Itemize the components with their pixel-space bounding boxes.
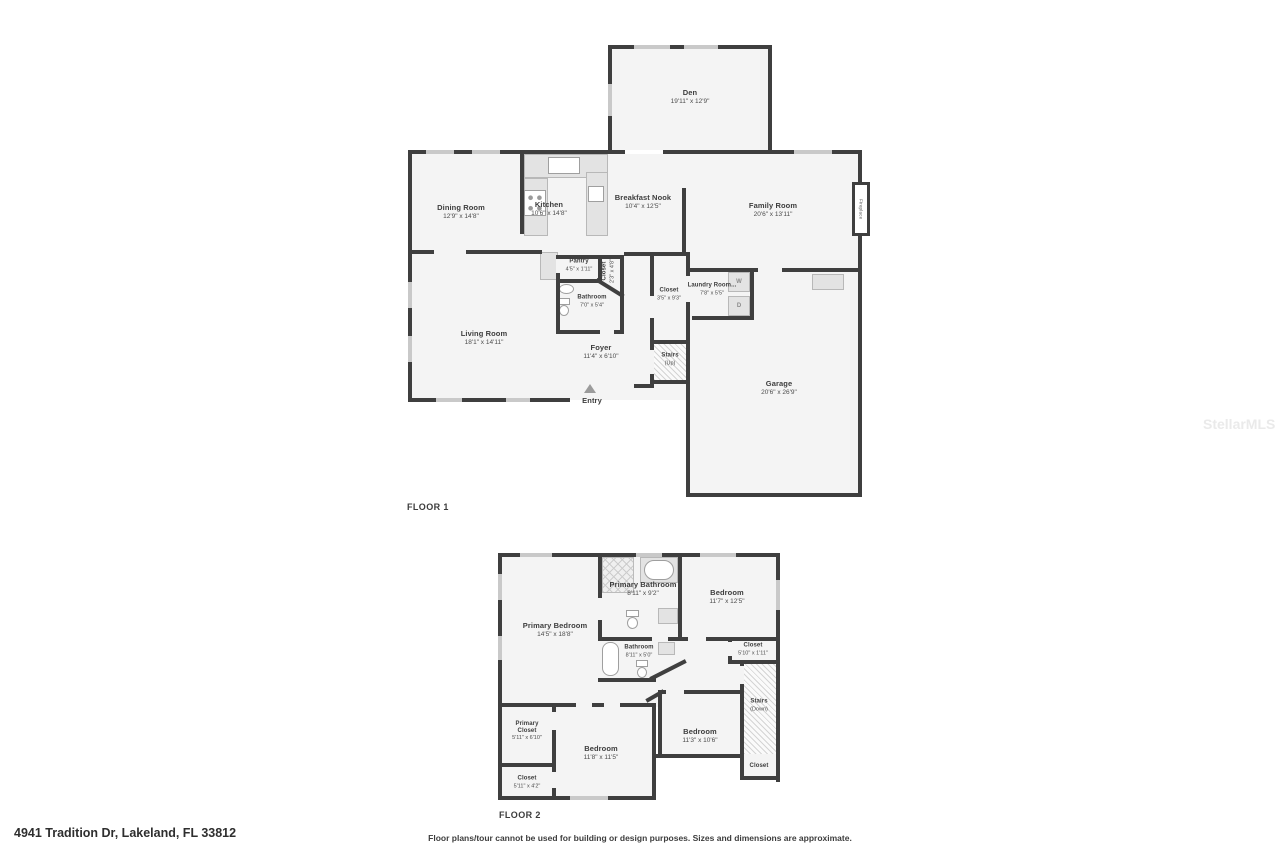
room-name: Entry <box>582 396 602 406</box>
wall-segment <box>408 398 570 402</box>
dryer-icon: D <box>728 296 750 316</box>
room-name: Breakfast Nook <box>615 193 671 203</box>
room-label-bedroom-mid: Bedroom 11'3" x 10'6" <box>682 727 717 745</box>
wall-segment <box>658 690 662 758</box>
room-dims: 11'8" x 11'5" <box>584 754 619 762</box>
room-dims: (Up) <box>661 360 678 367</box>
window-marker <box>408 336 412 362</box>
window-marker <box>498 574 502 600</box>
wall-segment <box>624 252 690 256</box>
kitchen-counter <box>586 172 608 236</box>
window-marker <box>634 45 670 49</box>
room-name: Bedroom <box>709 588 744 598</box>
door-opening <box>556 259 560 273</box>
door-opening <box>576 703 592 707</box>
fireplace: Fireplace <box>852 182 870 236</box>
door-opening <box>598 598 602 620</box>
room-dims: 12'9" x 14'8" <box>437 213 485 221</box>
room-name: Closet <box>514 776 541 784</box>
window-marker <box>794 150 832 154</box>
room-dims: (Down) <box>750 706 768 713</box>
entry-arrow-icon <box>584 384 596 393</box>
door-opening <box>666 690 684 694</box>
wall-segment <box>740 776 780 780</box>
room-dims: 19'11" x 12'9" <box>671 98 710 106</box>
room-name: Family Room <box>749 201 797 211</box>
room-label-bathroom: Bathroom 7'0" x 5'4" <box>577 295 606 310</box>
room-label-entry: Entry <box>582 396 602 406</box>
window-marker <box>436 398 462 402</box>
sink-icon <box>559 284 574 294</box>
room-label-family-room: Family Room 20'6" x 13'11" <box>749 201 797 219</box>
room-name: Closet <box>602 259 610 283</box>
room-name: Closet <box>657 288 681 296</box>
room-label-closet-right: Closet 5'10" x 1'11" <box>738 643 768 658</box>
sink-icon <box>658 642 675 655</box>
room-label-closet-left: Closet 5'11" x 4'2" <box>514 776 541 791</box>
room-dims: 8'11" x 5'0" <box>624 652 653 659</box>
room-name: Living Room <box>461 329 508 339</box>
watermark: StellarMLS <box>1203 416 1275 432</box>
room-label-den: Den 19'11" x 12'9" <box>671 88 710 106</box>
window-marker <box>472 150 500 154</box>
wall-segment <box>663 150 862 154</box>
wall-segment <box>408 150 412 402</box>
room-name: Bedroom <box>584 744 619 754</box>
door-opening <box>758 268 782 272</box>
wall-segment <box>650 340 690 344</box>
room-label-hall-closet: Closet 3'5" x 9'3" <box>657 288 681 303</box>
window-marker <box>570 796 608 800</box>
door-opening <box>740 666 744 684</box>
wall-segment <box>466 250 542 254</box>
floor2-title: FLOOR 2 <box>499 810 541 820</box>
fireplace-label: Fireplace <box>859 199 864 219</box>
equipment-box <box>812 274 844 290</box>
room-dims: 20'6" x 13'11" <box>749 211 797 219</box>
room-name: Bedroom <box>682 727 717 737</box>
room-label-pantry: Pantry 4'5" x 1'11" <box>566 259 593 274</box>
room-label-bathroom2: Bathroom 8'11" x 5'0" <box>624 645 653 660</box>
room-label-kitchen: Kitchen 10'6" x 14'8" <box>531 200 567 218</box>
room-dims: 5'11" x 6'10" <box>506 736 548 743</box>
room-name: Primary Closet <box>506 721 548 735</box>
room-dims: 5'10" x 1'11" <box>738 650 768 657</box>
wall-segment <box>682 188 686 254</box>
wall-segment <box>728 660 780 664</box>
door-opening <box>552 712 556 730</box>
room-label-bedroom-right: Bedroom 11'7" x 12'5" <box>709 588 744 606</box>
wall-segment <box>598 637 682 641</box>
wall-segment <box>750 268 754 320</box>
room-dims: 3'5" x 9'3" <box>657 295 681 302</box>
door-opening <box>688 637 706 641</box>
room-dims: 2'3" x 4'8" <box>609 259 616 283</box>
room-floor <box>658 692 742 756</box>
toilet-icon <box>637 667 647 678</box>
door-opening <box>650 350 654 374</box>
door-opening <box>600 330 614 334</box>
room-dims: 5'11" x 4'2" <box>514 783 541 790</box>
address-text: 4941 Tradition Dr, Lakeland, FL 33812 <box>14 826 236 840</box>
room-name: Pantry <box>566 259 593 267</box>
room-label-primary-closet: Primary Closet 5'11" x 6'10" <box>506 721 548 743</box>
room-name: Foyer <box>583 343 618 353</box>
room-dims: 7'0" x 5'4" <box>577 302 606 309</box>
room-label-closet-stairs: Closet <box>750 763 769 771</box>
floor-plan-canvas: W D Fireplace Den <box>0 0 1280 853</box>
wall-segment <box>598 678 656 682</box>
window-marker <box>636 553 662 557</box>
room-dims: 7'8" x 5'5" <box>688 290 737 297</box>
bathtub-icon <box>644 560 674 580</box>
wall-segment <box>634 384 654 388</box>
room-dims: 14'5" x 18'8" <box>523 631 587 639</box>
door-opening <box>604 703 620 707</box>
toilet-icon <box>559 305 569 316</box>
room-dims: 4'5" x 1'11" <box>566 266 593 273</box>
room-name: Kitchen <box>531 200 567 210</box>
room-label-laundry-room: Laundry Room... 7'8" x 5'5" <box>688 283 737 298</box>
room-label-stairs-up: Stairs (Up) <box>661 353 678 368</box>
window-marker <box>408 282 412 308</box>
room-dims: 18'1" x 14'11" <box>461 339 508 347</box>
disclaimer-text: Floor plans/tour cannot be used for buil… <box>428 833 852 843</box>
toilet-icon <box>627 617 638 629</box>
room-name: Dining Room <box>437 203 485 213</box>
room-label-breakfast-nook: Breakfast Nook 10'4" x 12'5" <box>615 193 671 211</box>
room-label-kitchen-closet: Closet 2'3" x 4'8" <box>602 259 617 283</box>
wall-segment <box>678 553 682 641</box>
room-label-primary-bathroom: Primary Bathroom 8'11" x 9'2" <box>609 580 676 598</box>
window-marker <box>608 84 612 116</box>
wall-segment <box>650 380 690 384</box>
room-label-garage: Garage 20'6" x 26'9" <box>761 379 797 397</box>
room-name: Garage <box>761 379 797 389</box>
room-label-stairs-down: Stairs (Down) <box>750 699 768 714</box>
room-name: Primary Bathroom <box>609 580 676 590</box>
wall-segment <box>692 316 754 320</box>
wall-segment <box>498 763 556 767</box>
window-marker <box>776 580 780 610</box>
window-marker <box>506 398 530 402</box>
door-opening <box>552 772 556 788</box>
room-name: Closet <box>738 643 768 651</box>
window-marker <box>684 45 718 49</box>
wall-segment <box>688 493 862 497</box>
door-opening <box>652 637 668 641</box>
window-marker <box>426 150 454 154</box>
door-opening <box>650 296 654 318</box>
room-label-dining-room: Dining Room 12'9" x 14'8" <box>437 203 485 221</box>
door-opening <box>728 642 732 656</box>
room-label-living-room: Living Room 18'1" x 14'11" <box>461 329 508 347</box>
kitchen-sink-icon <box>548 157 580 174</box>
wall-segment <box>654 754 744 758</box>
room-label-primary-bedroom: Primary Bedroom 14'5" x 18'8" <box>523 621 587 639</box>
room-dims: 10'4" x 12'5" <box>615 203 671 211</box>
room-name: Primary Bedroom <box>523 621 587 631</box>
room-name: Laundry Room... <box>688 283 737 291</box>
wall-segment <box>598 553 602 641</box>
window-marker <box>520 553 552 557</box>
room-name: Stairs <box>750 699 768 707</box>
room-name: Stairs <box>661 353 678 361</box>
room-label-bedroom-bottom: Bedroom 11'8" x 11'5" <box>584 744 619 762</box>
room-dims: 20'6" x 26'9" <box>761 389 797 397</box>
window-marker <box>498 636 502 660</box>
room-name: Den <box>671 88 710 98</box>
wall-segment <box>652 703 656 800</box>
room-dims: 11'3" x 10'6" <box>682 737 717 745</box>
wall-segment <box>408 250 434 254</box>
toilet-icon <box>636 660 648 667</box>
window-marker <box>700 553 736 557</box>
sink-icon <box>658 608 678 624</box>
room-dims: 10'6" x 14'8" <box>531 210 567 218</box>
room-name: Bathroom <box>577 295 606 303</box>
room-name: Bathroom <box>624 645 653 653</box>
room-dims: 11'4" x 6'10" <box>583 353 618 361</box>
bathtub-icon <box>602 642 619 676</box>
wall-segment <box>768 45 772 154</box>
room-label-foyer: Foyer 11'4" x 6'10" <box>583 343 618 361</box>
room-name: Closet <box>750 763 769 771</box>
dishwasher-icon <box>588 186 604 202</box>
wall-segment <box>520 150 524 234</box>
room-dims: 11'7" x 12'5" <box>709 598 744 606</box>
room-dims: 8'11" x 9'2" <box>609 590 676 598</box>
floor1-title: FLOOR 1 <box>407 502 449 512</box>
toilet-icon <box>626 610 639 617</box>
